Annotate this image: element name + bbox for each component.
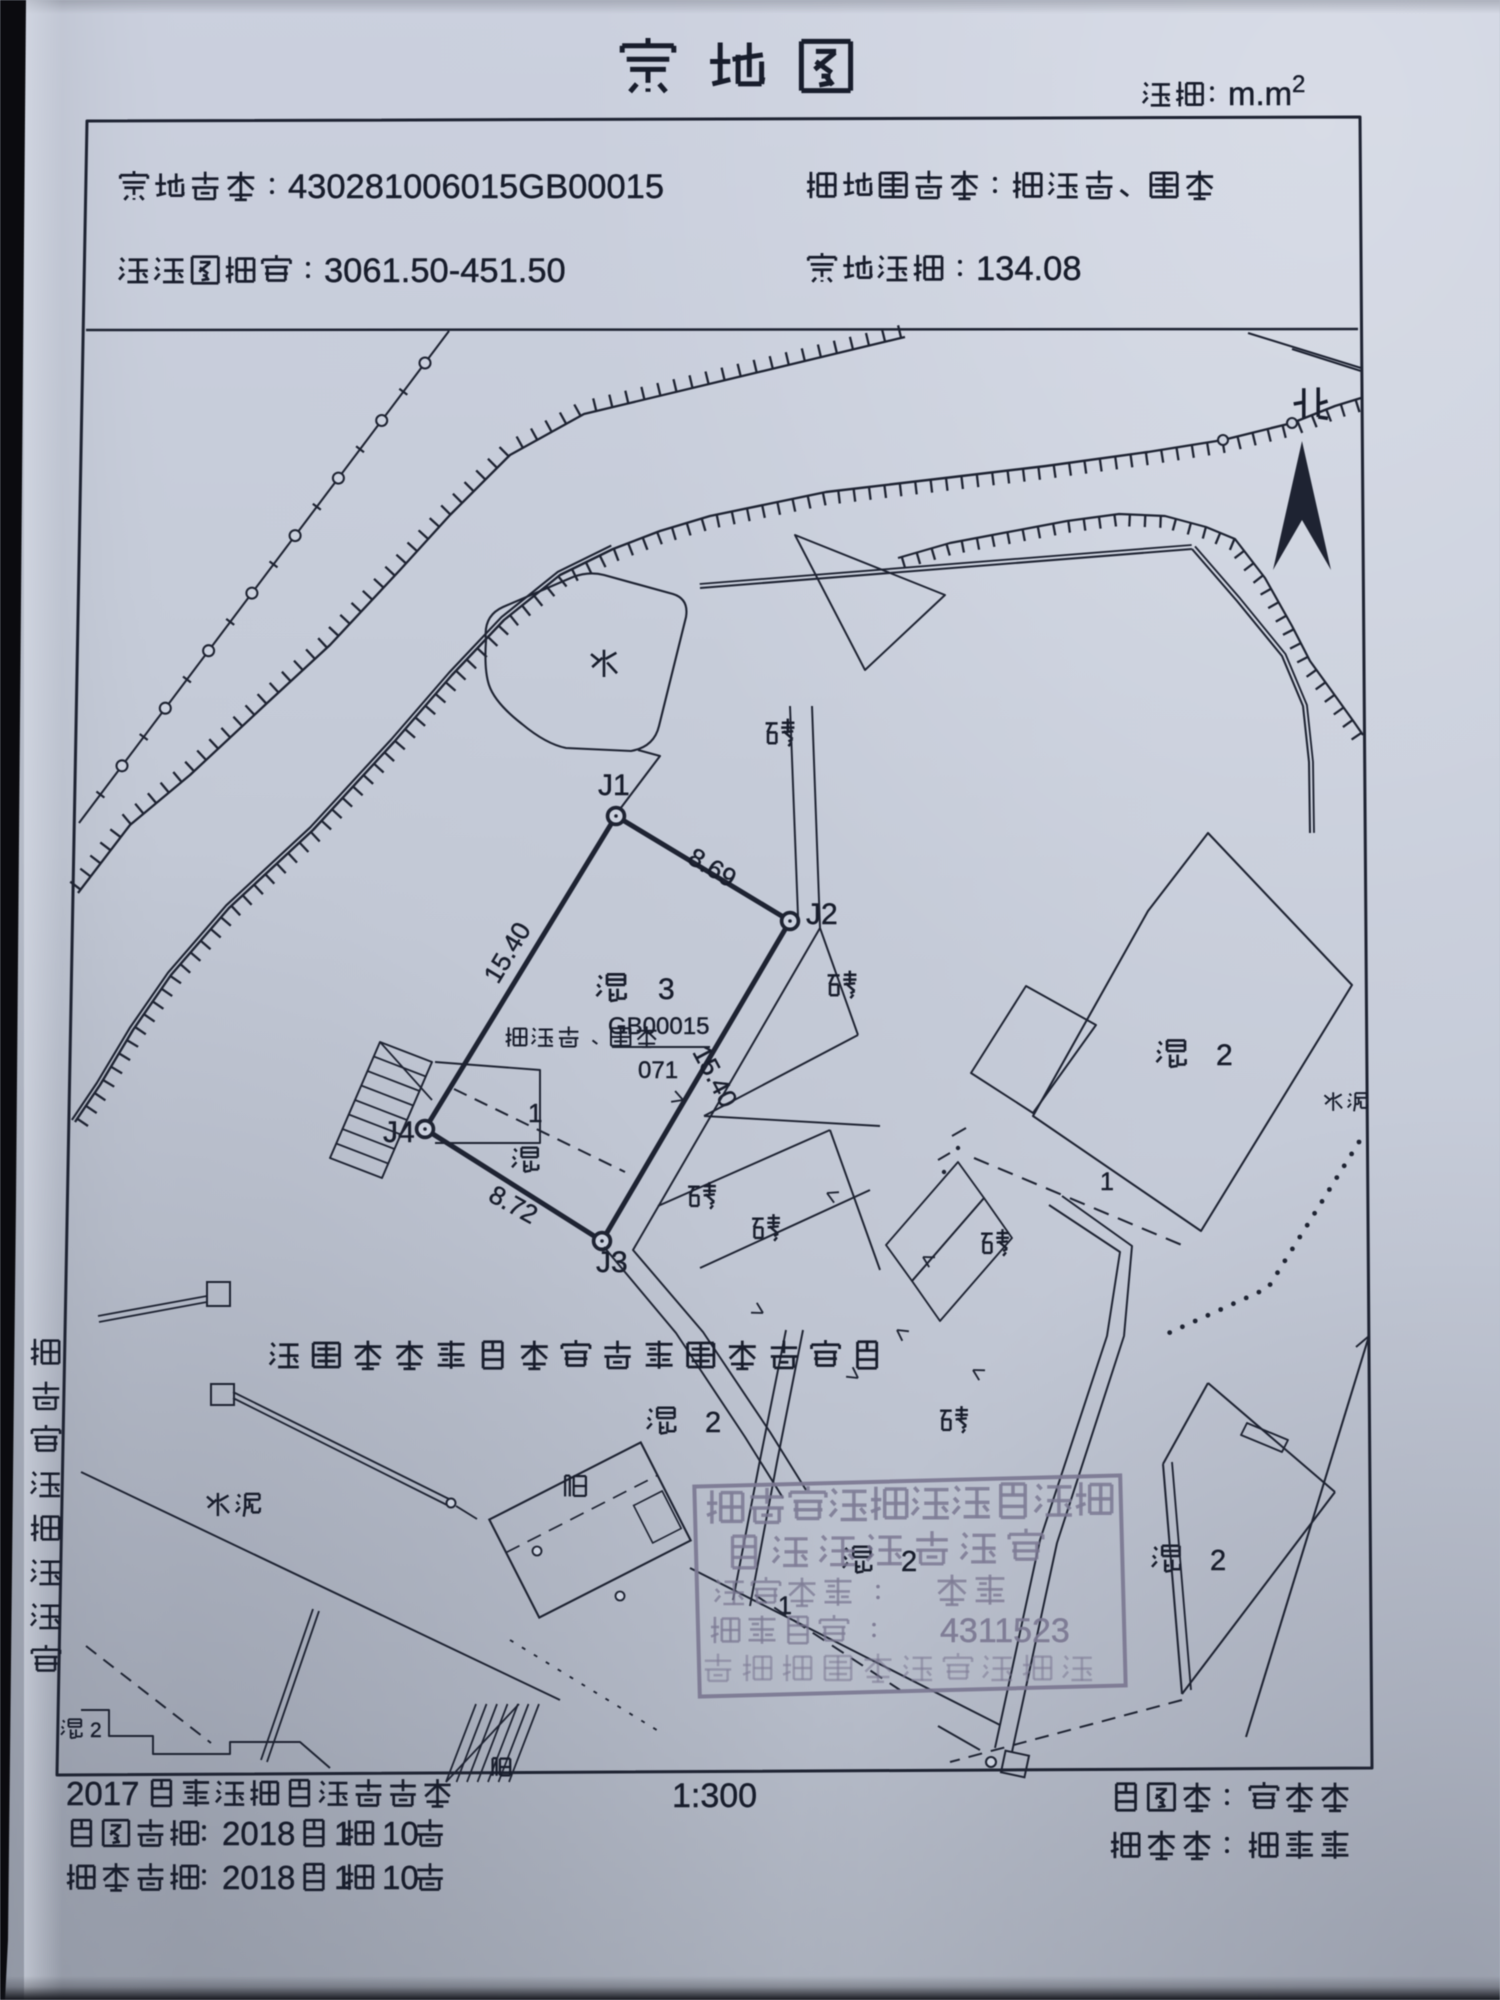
svg-text:2018: 2018 [222, 1815, 295, 1852]
svg-text:3: 3 [658, 973, 675, 1006]
svg-text:071: 071 [638, 1057, 678, 1084]
svg-text:2: 2 [1210, 1545, 1226, 1577]
svg-text:134.08: 134.08 [976, 250, 1082, 288]
svg-text:m.m: m.m [1228, 75, 1292, 112]
svg-text:2: 2 [705, 1407, 721, 1439]
svg-text:1:300: 1:300 [672, 1777, 757, 1815]
svg-text:1: 1 [528, 1098, 542, 1128]
svg-text:10: 10 [382, 1815, 419, 1852]
svg-text:2: 2 [1292, 71, 1305, 98]
svg-text:3061.50-451.50: 3061.50-451.50 [324, 252, 566, 290]
svg-text:1: 1 [1100, 1168, 1114, 1196]
svg-text:J4: J4 [383, 1116, 415, 1149]
svg-text:10: 10 [382, 1859, 419, 1896]
svg-text:J3: J3 [596, 1246, 628, 1279]
svg-text:430281006015GB00015: 430281006015GB00015 [288, 168, 664, 206]
svg-text:2018: 2018 [222, 1859, 295, 1896]
svg-text:J2: J2 [806, 898, 838, 931]
svg-text:2: 2 [901, 1546, 917, 1578]
svg-text:J1: J1 [598, 769, 630, 802]
svg-text:4311523: 4311523 [940, 1612, 1070, 1650]
svg-text:GB00015: GB00015 [608, 1013, 709, 1040]
svg-text:2: 2 [90, 1719, 102, 1742]
svg-text:2: 2 [1216, 1039, 1233, 1072]
svg-text:2017: 2017 [66, 1775, 139, 1812]
